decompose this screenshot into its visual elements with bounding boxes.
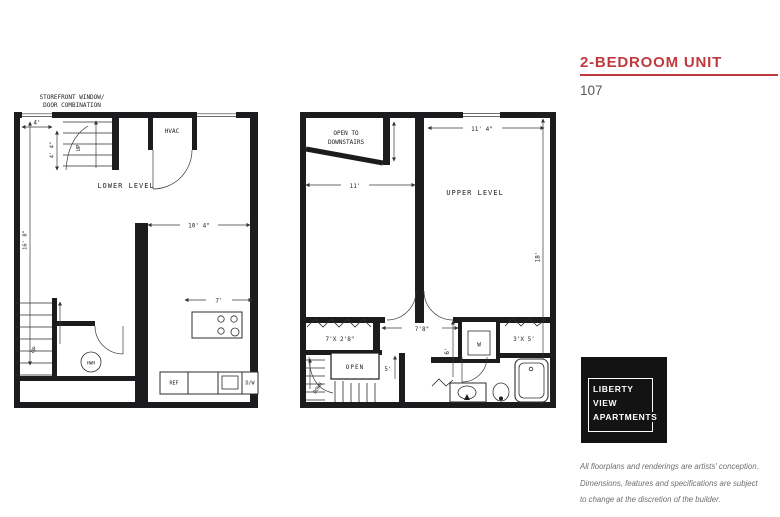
dim-hall-width: 7'8" <box>415 326 429 333</box>
lower-level-label: LOWER LEVEL <box>97 182 154 190</box>
water-heater-room: HWH <box>81 326 123 372</box>
stair-treads <box>16 303 52 375</box>
kitchen: REF D/W <box>160 312 258 394</box>
hvac-door-arc <box>153 150 192 189</box>
door-arc <box>95 326 123 354</box>
dim-side-length: 16' 8" <box>23 230 29 250</box>
open-to-downstairs: OPEN TO DOWNSTAIRS <box>306 122 394 163</box>
entry-stairs: UP <box>63 121 112 170</box>
stair-treads <box>335 381 375 402</box>
dim-left-room: 11' <box>350 183 361 190</box>
center-wall <box>135 223 148 408</box>
stair-treads <box>63 122 112 166</box>
liberty-view-logo: LIBERTY VIEW APARTMENTS <box>581 357 667 443</box>
unit-number: 107 <box>580 83 603 98</box>
refrigerator-label: REF <box>169 381 178 387</box>
door-arc-right <box>424 291 453 320</box>
door-arc-left <box>387 291 416 320</box>
bathroom <box>432 357 548 402</box>
up-label: UP <box>30 345 39 354</box>
closet-right-label: 3'X 5' <box>513 336 535 343</box>
logo-line2: VIEW <box>592 398 618 408</box>
counter <box>188 372 218 394</box>
window <box>463 114 500 117</box>
open-label-line2: DOWNSTAIRS <box>328 139 365 146</box>
disclaimer-line3: to change at the discretion of the build… <box>580 492 759 509</box>
floorplan-sheet: STOREFRONT WINDOW/ DOOR COMBINATION UP <box>0 0 780 517</box>
dim-right-room: 11' 4" <box>471 126 493 133</box>
page-title: 2-BEDROOM UNIT <box>580 54 722 71</box>
disclaimer-line1: All floorplans and renderings are artist… <box>580 459 759 476</box>
washer-label: W <box>477 342 481 349</box>
up-label: UP <box>76 144 82 151</box>
storefront-window <box>22 114 52 117</box>
logo-line1: LIBERTY <box>592 384 635 394</box>
hvac-label: HVAC <box>165 128 180 135</box>
logo-line3: APARTMENTS <box>592 412 658 422</box>
stair-open-label: OPEN <box>346 364 364 371</box>
bedroom-divider-wall <box>415 112 424 323</box>
open-label-line1: OPEN TO <box>333 130 359 137</box>
storefront-annotation: STOREFRONT WINDOW/ DOOR COMBINATION <box>39 94 104 109</box>
dim-living-width: 10' 4" <box>188 223 210 230</box>
upper-level-floorplan: OPEN TO DOWNSTAIRS 11' 11' 4" 18' 7'8" 6… <box>295 105 560 415</box>
annotation-line1: STOREFRONT WINDOW/ <box>39 94 104 101</box>
lower-level-floorplan: STOREFRONT WINDOW/ DOOR COMBINATION UP <box>8 88 268 420</box>
dim-stair-depth: 4' 4" <box>50 142 56 159</box>
hvac-closet: HVAC <box>153 128 192 189</box>
dishwasher-label: D/W <box>245 381 255 387</box>
disclaimer: All floorplans and renderings are artist… <box>580 459 759 509</box>
disclaimer-line2: Dimensions, features and specifications … <box>580 476 759 493</box>
annotation-line2: DOOR COMBINATION <box>43 102 101 109</box>
dim-hall-depth: 6' <box>444 347 451 354</box>
dim-side-length: 18' <box>535 252 542 263</box>
dim-stair-width: 5' <box>384 366 391 373</box>
washer: W <box>460 320 498 361</box>
stairs-down: OPEN DOWN <box>306 353 379 402</box>
dim-door-width: 4' <box>33 120 40 127</box>
dim-kitchen-width: 7' <box>215 298 222 305</box>
railing <box>306 149 383 163</box>
water-heater-label: HWH <box>87 360 96 366</box>
closet-left-label: 7'X 2'8" <box>326 336 355 343</box>
title-underline <box>580 74 778 76</box>
upper-level-label: UPPER LEVEL <box>446 189 503 197</box>
window <box>196 114 236 117</box>
